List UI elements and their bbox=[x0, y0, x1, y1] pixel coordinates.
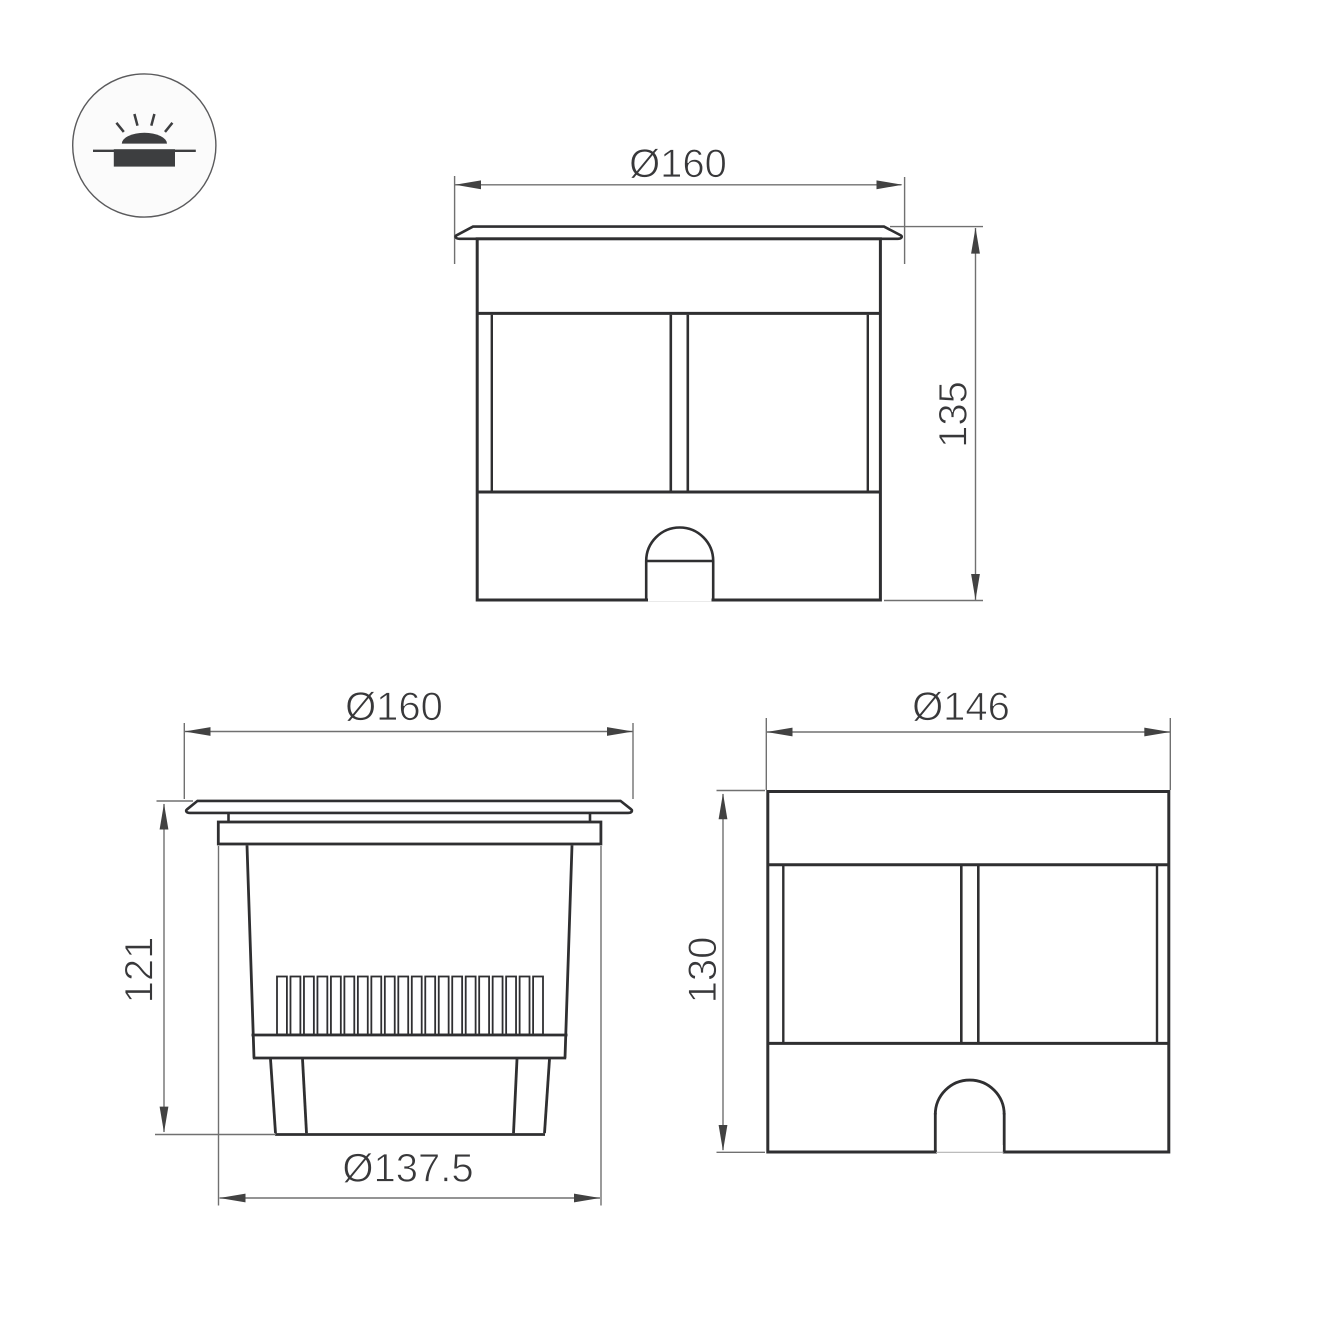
svg-text:121: 121 bbox=[118, 937, 162, 1004]
svg-text:135: 135 bbox=[932, 381, 976, 448]
svg-text:Ø160: Ø160 bbox=[629, 142, 727, 186]
svg-text:Ø137.5: Ø137.5 bbox=[342, 1147, 473, 1191]
svg-text:Ø146: Ø146 bbox=[912, 685, 1010, 729]
svg-text:Ø160: Ø160 bbox=[345, 685, 443, 729]
svg-text:130: 130 bbox=[681, 937, 725, 1004]
